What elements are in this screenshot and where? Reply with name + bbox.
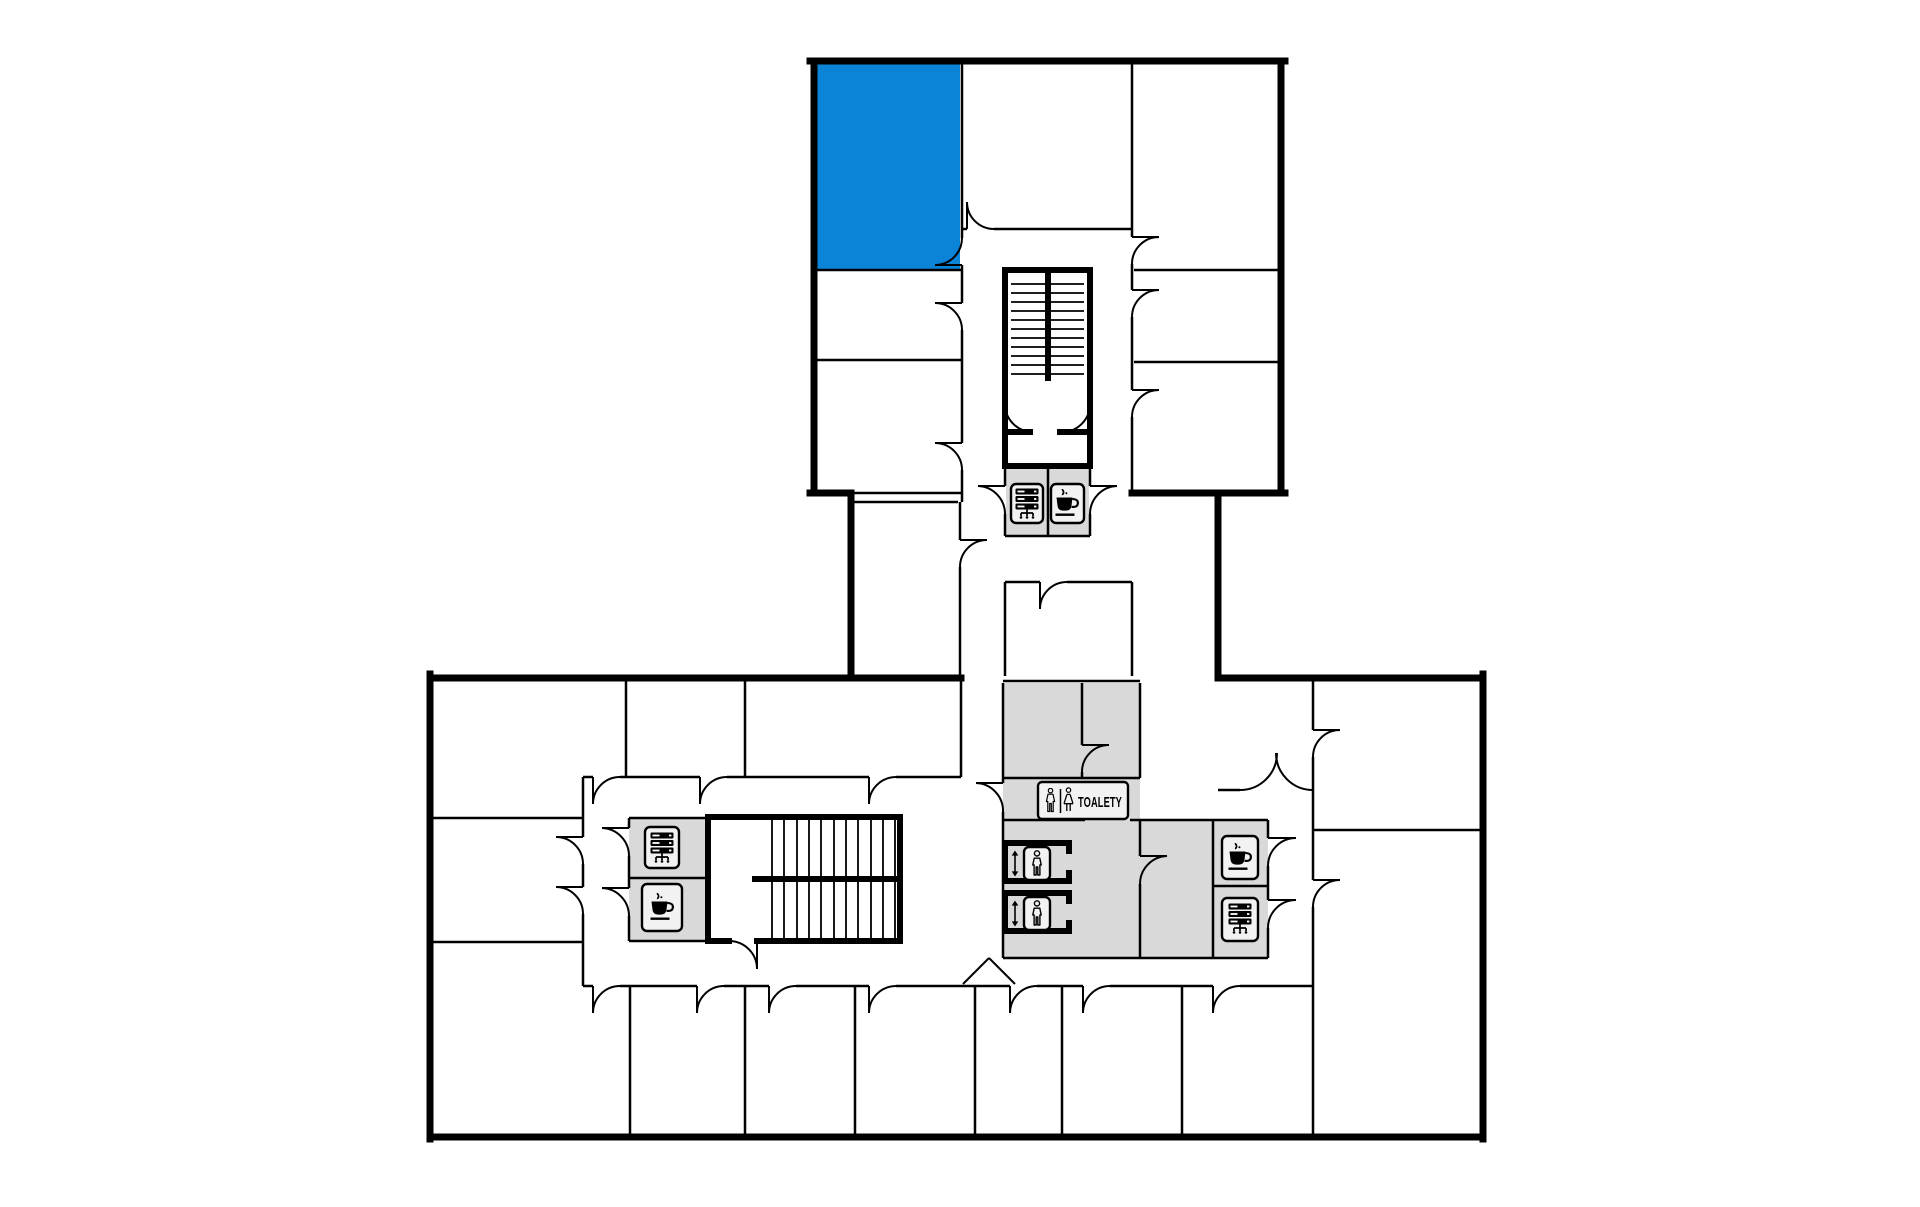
room-lower-top-2[interactable] [747, 680, 959, 775]
room-lower-top-left[interactable] [432, 680, 624, 816]
room-lower-bottom-5[interactable] [977, 988, 1060, 1135]
room-lower-left-2[interactable] [432, 944, 581, 984]
floor-plan-svg: TOALETY [0, 0, 1920, 1207]
room-lower-bottom-7[interactable] [1184, 988, 1311, 1135]
room-lower-bottom-2[interactable] [632, 988, 743, 1135]
room-lower-left-1[interactable] [432, 820, 581, 940]
room-lower-right-bottom[interactable] [1315, 832, 1481, 1135]
room-lower-bottom-6[interactable] [1064, 988, 1180, 1135]
highlighted-room[interactable] [814, 61, 960, 269]
floor-plan-page: TOALETY [0, 0, 1920, 1207]
room-upper-right-top[interactable] [1134, 63, 1279, 268]
room-upper-mid-top[interactable] [964, 63, 1130, 227]
room-connector[interactable] [853, 504, 958, 674]
room-lower-bottom-4[interactable] [857, 988, 973, 1135]
room-lower-right-top[interactable] [1315, 680, 1481, 828]
room-lower-top-1[interactable] [628, 680, 743, 775]
elevator-1-sign [1024, 847, 1050, 880]
room-upper-right-bottom[interactable] [1134, 364, 1279, 491]
room-lower-bottom-1[interactable] [432, 988, 628, 1135]
room-toilet-b[interactable] [1084, 685, 1138, 776]
room-toilet-a[interactable] [1005, 685, 1080, 776]
room-upper-left-mid[interactable] [816, 272, 960, 358]
room-inner[interactable] [1007, 584, 1130, 676]
toilets-label: TOALETY [1078, 794, 1122, 811]
room-upper-left-bottom[interactable] [816, 362, 960, 491]
elevator-2-sign [1024, 897, 1050, 930]
room-upper-right-mid[interactable] [1134, 272, 1279, 360]
toilets-sign: TOALETY [1038, 782, 1128, 819]
room-lower-bottom-3[interactable] [747, 988, 853, 1135]
